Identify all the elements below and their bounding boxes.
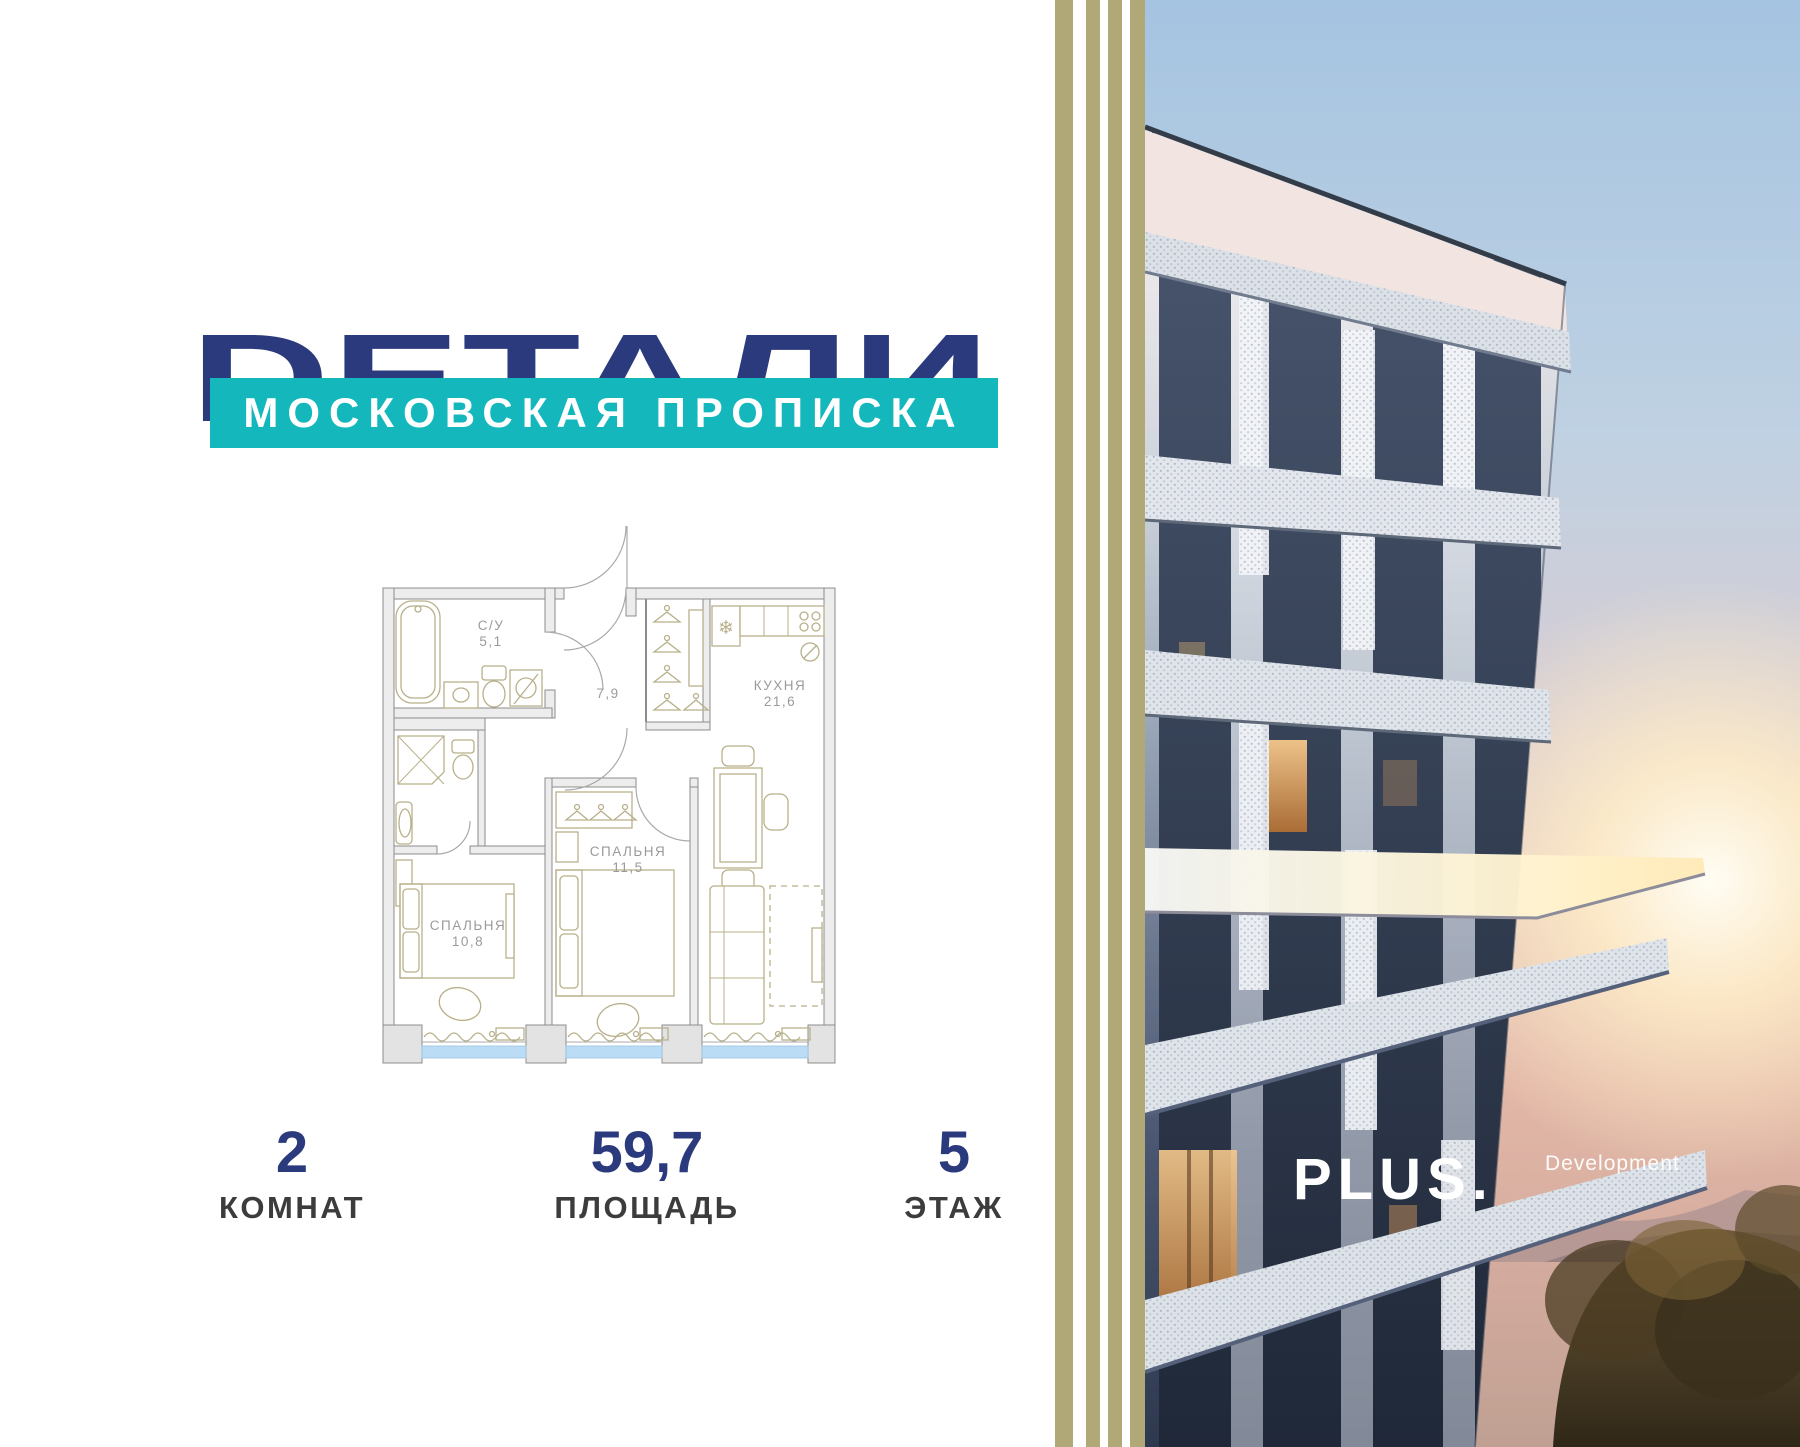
room-label-bedroom-2: СПАЛЬНЯ: [590, 844, 666, 859]
brand-subtitle: МОСКОВСКАЯ ПРОПИСКА: [243, 389, 964, 437]
stat-area-value: 59,7: [554, 1124, 739, 1182]
building-photo: PLUS. Development: [1145, 0, 1800, 1447]
divider-stripe: [1055, 0, 1073, 1447]
floor-plan: ❄: [360, 480, 840, 1100]
brand-subtitle-banner: МОСКОВСКАЯ ПРОПИСКА: [210, 378, 998, 448]
stat-floor-value: 5: [904, 1124, 1003, 1182]
room-area-bedroom-1: 10,8: [452, 934, 484, 949]
room-area-bedroom-2: 11,5: [612, 860, 643, 875]
developer-logo-text: PLUS.: [1293, 1147, 1494, 1212]
room-label-bathroom: С/У: [478, 618, 505, 633]
stat-area-label: ПЛОЩАДЬ: [554, 1190, 739, 1226]
developer-logo-suffix: Development: [1545, 1152, 1680, 1176]
stat-area: 59,7 ПЛОЩАДЬ: [554, 1124, 739, 1226]
stat-floor-label: ЭТАЖ: [904, 1190, 1003, 1226]
room-label-bedroom-1: СПАЛЬНЯ: [430, 918, 506, 933]
stat-floor: 5 ЭТАЖ: [904, 1124, 1003, 1226]
stat-rooms-value: 2: [219, 1124, 365, 1182]
svg-text:❄: ❄: [718, 618, 734, 639]
room-area-hall: 7,9: [596, 686, 619, 701]
divider-stripe: [1086, 0, 1100, 1447]
room-label-kitchen: КУХНЯ: [754, 678, 807, 693]
room-area-kitchen: 21,6: [764, 694, 796, 709]
divider-stripe: [1130, 0, 1145, 1447]
stat-rooms-label: КОМНАТ: [219, 1190, 365, 1226]
developer-logo: PLUS. Development: [1293, 1146, 1494, 1213]
stat-rooms: 2 КОМНАТ: [219, 1124, 365, 1226]
room-area-bathroom: 5,1: [479, 634, 502, 649]
divider-stripe: [1108, 0, 1122, 1447]
listing-card: DЕТАЛИ МОСКОВСКАЯ ПРОПИСКА: [0, 0, 1800, 1447]
